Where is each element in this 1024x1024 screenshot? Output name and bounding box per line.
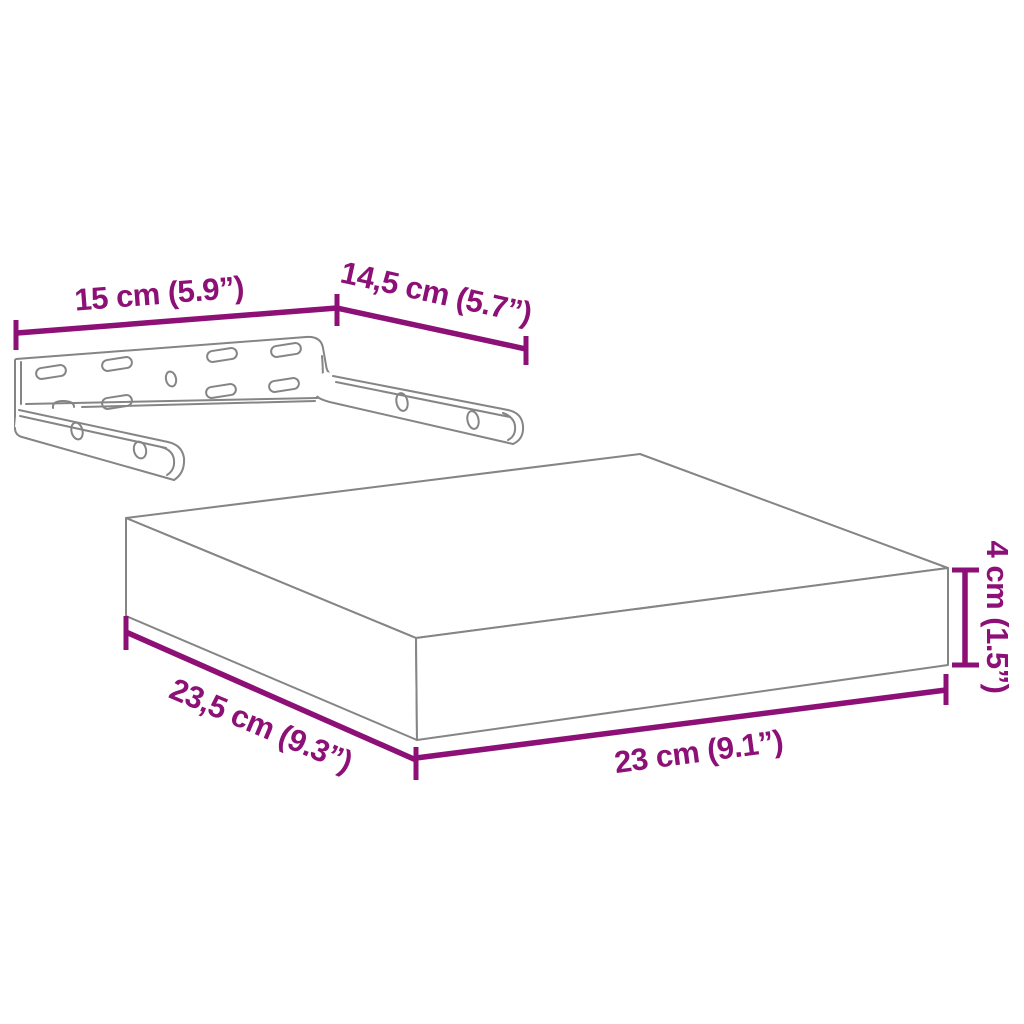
dimension-shelf-height: 4 cm (1.5”) bbox=[952, 540, 1015, 693]
label-bracket-width: 15 cm (5.9”) bbox=[73, 269, 245, 317]
diagram-canvas: 15 cm (5.9”) 14,5 cm (5.7”) 4 cm (1.5”) bbox=[0, 0, 1024, 1024]
label-bracket-depth: 14,5 cm (5.7”) bbox=[337, 255, 535, 331]
dimension-bracket-depth: 14,5 cm (5.7”) bbox=[337, 255, 535, 365]
label-shelf-height: 4 cm (1.5”) bbox=[980, 540, 1015, 693]
bracket-right-arm bbox=[317, 372, 523, 444]
dim-line bbox=[17, 308, 337, 333]
dimension-diagram: 15 cm (5.9”) 14,5 cm (5.7”) 4 cm (1.5”) bbox=[0, 0, 1024, 1024]
shelf-drawing bbox=[126, 454, 948, 740]
bracket-left-arm bbox=[15, 405, 184, 480]
wall-bracket-drawing bbox=[15, 337, 523, 480]
